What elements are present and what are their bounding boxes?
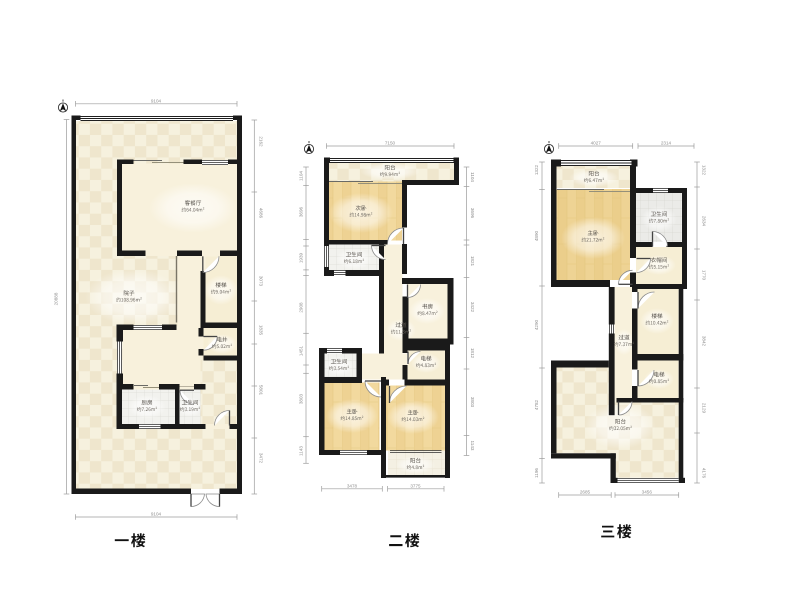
svg-text:20888: 20888 <box>54 292 59 305</box>
svg-text:1770: 1770 <box>702 270 707 281</box>
svg-text:3696: 3696 <box>470 208 475 219</box>
svg-text:4782: 4782 <box>534 399 539 410</box>
svg-text:2314: 2314 <box>661 141 672 146</box>
svg-text:1821: 1821 <box>470 256 475 267</box>
svg-text:9104: 9104 <box>151 98 162 103</box>
svg-text:1812: 1812 <box>470 348 475 359</box>
svg-text:1322: 1322 <box>702 165 707 176</box>
svg-text:3478: 3478 <box>347 483 358 488</box>
svg-text:3073: 3073 <box>259 276 264 287</box>
svg-text:3472: 3472 <box>259 453 264 464</box>
svg-text:4290: 4290 <box>534 319 539 330</box>
svg-text:5801: 5801 <box>259 385 264 396</box>
svg-text:2685: 2685 <box>580 490 591 495</box>
svg-text:3456: 3456 <box>642 490 653 495</box>
svg-text:4176: 4176 <box>702 468 707 479</box>
svg-text:4686: 4686 <box>259 208 264 219</box>
svg-text:1322: 1322 <box>534 164 539 175</box>
svg-text:1939: 1939 <box>299 252 304 263</box>
svg-text:1835: 1835 <box>259 325 264 336</box>
svg-text:2162: 2162 <box>259 136 264 147</box>
svg-text:2908: 2908 <box>299 302 304 313</box>
svg-text:3842: 3842 <box>702 336 707 347</box>
svg-text:2634: 2634 <box>702 216 707 227</box>
svg-text:3775: 3775 <box>410 483 421 488</box>
svg-text:4027: 4027 <box>591 141 602 146</box>
svg-text:1104: 1104 <box>470 172 475 182</box>
svg-text:9104: 9104 <box>151 512 162 517</box>
svg-text:3803: 3803 <box>470 397 475 408</box>
svg-text:2129: 2129 <box>702 403 707 414</box>
svg-text:1143: 1143 <box>299 446 304 456</box>
svg-text:1143: 1143 <box>470 441 475 451</box>
svg-text:1104: 1104 <box>299 171 304 181</box>
svg-text:3803: 3803 <box>299 393 304 404</box>
svg-text:1196: 1196 <box>534 468 539 478</box>
svg-text:3696: 3696 <box>299 206 304 217</box>
svg-text:1451: 1451 <box>299 345 304 356</box>
svg-text:4890: 4890 <box>534 230 539 241</box>
svg-text:3422: 3422 <box>470 302 475 313</box>
svg-text:7150: 7150 <box>385 141 396 146</box>
